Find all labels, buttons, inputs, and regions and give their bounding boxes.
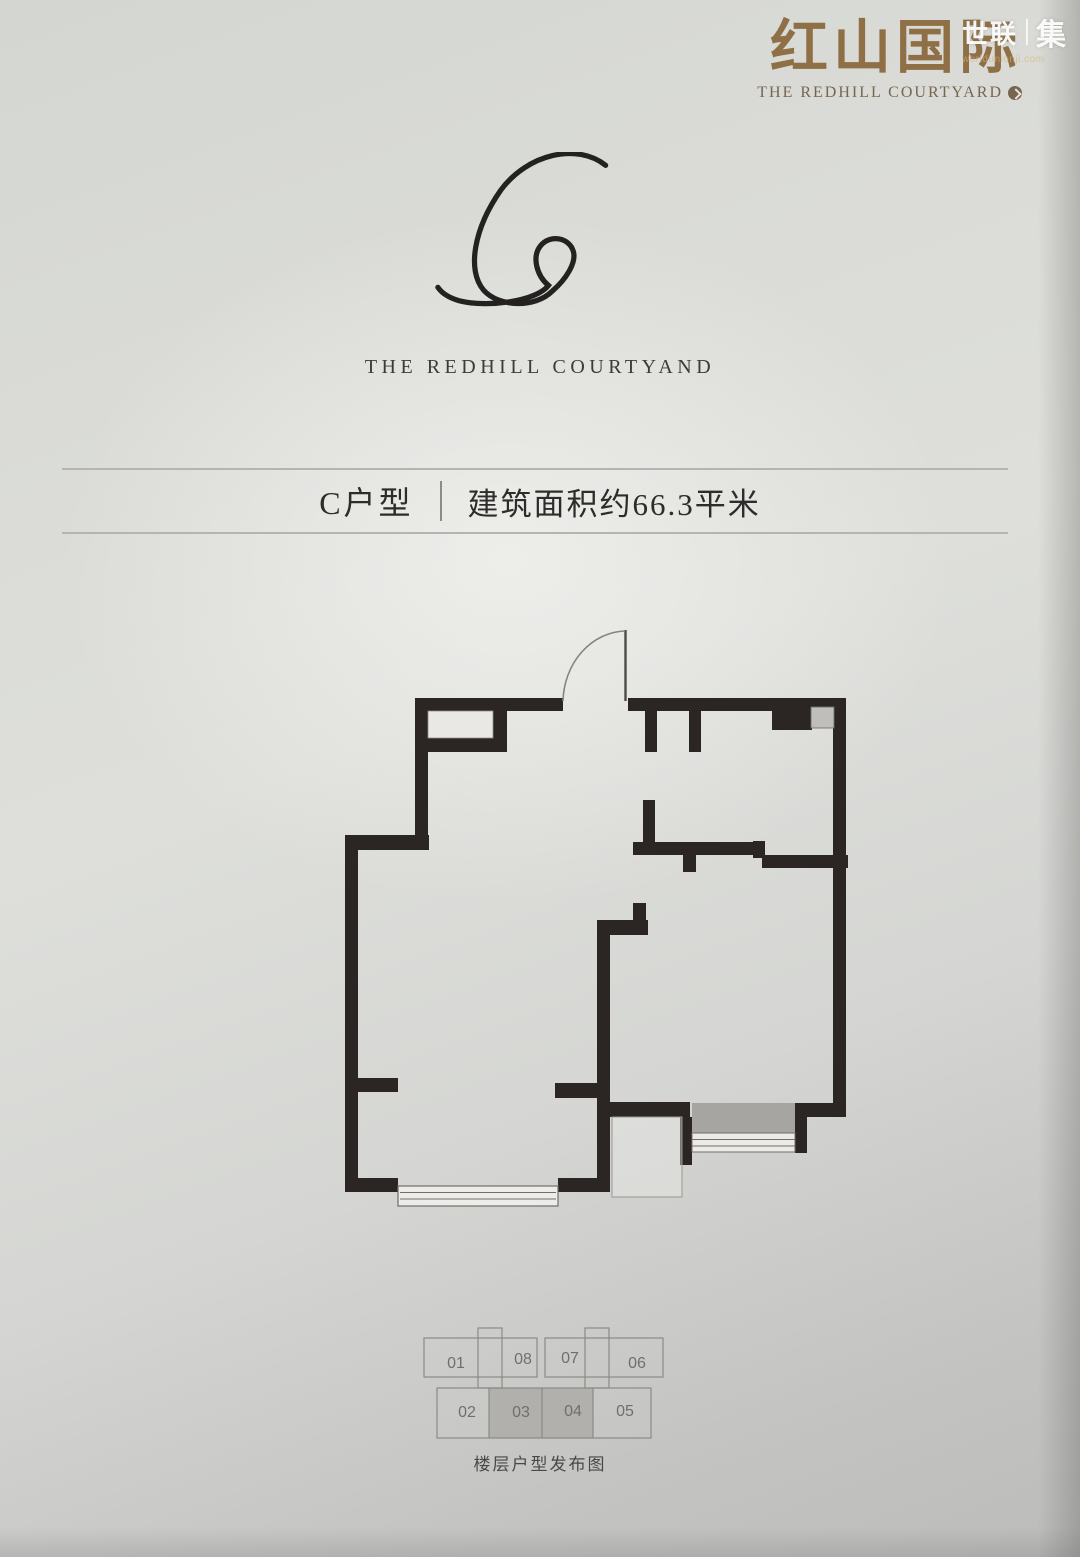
wall-segment <box>689 711 701 752</box>
title-band: C户型 建筑面积约66.3平米 <box>0 470 1080 532</box>
wall-segment <box>555 1083 597 1098</box>
unit-label: 07 <box>561 1350 579 1367</box>
wall-segment <box>345 850 358 1192</box>
utility-platform <box>612 1117 682 1197</box>
unit-label: 01 <box>447 1355 465 1372</box>
watermark-row: 世联 集 <box>962 10 1066 54</box>
building-outline <box>478 1328 502 1388</box>
living-room-window <box>398 1186 558 1206</box>
wordmark: THE REDHILL COURTYAND <box>0 356 1080 379</box>
watermark-divider <box>1026 19 1028 45</box>
photo-edge-shadow-right <box>1038 0 1080 1557</box>
divider-line-bottom <box>62 532 1008 534</box>
photo-edge-shadow-bottom <box>0 1527 1080 1557</box>
door-arc <box>563 631 625 701</box>
unit-label: 08 <box>514 1351 532 1368</box>
wall-segment <box>645 711 657 752</box>
key-plan-caption: 楼层户型发布图 <box>0 1450 1080 1475</box>
wall-segment <box>345 835 429 850</box>
key-plan-svg: 0108070602030405 <box>415 1322 671 1444</box>
unit-label: 06 <box>628 1355 646 1372</box>
wall-segment <box>415 711 428 850</box>
wall-segment <box>772 711 812 730</box>
wall-segment <box>597 920 610 1192</box>
wall-segment <box>833 698 846 1117</box>
wall-segment <box>643 800 655 842</box>
watermark-left-text: 世联 <box>962 14 1018 51</box>
wall-segment <box>358 1078 398 1092</box>
balcony-deck <box>692 1103 795 1133</box>
wall-segment <box>493 711 507 745</box>
floor-plan-svg <box>340 622 852 1210</box>
closet-niche <box>428 711 493 738</box>
unit-label: 03 <box>512 1404 530 1421</box>
brand-logo-en: The Redhill Courtyard <box>757 84 1022 102</box>
monogram-script-c <box>432 152 642 314</box>
area-label: 建筑面积约66.3平米 <box>468 479 761 524</box>
watermark: 世联 集 worldunionji.com <box>962 10 1066 65</box>
script-c-path <box>438 154 606 304</box>
unit-label: 05 <box>616 1403 634 1420</box>
balcony-window <box>692 1133 795 1152</box>
circle-arrow-icon <box>1008 86 1022 100</box>
wall-segment <box>633 903 646 935</box>
wall-segment <box>795 1103 807 1153</box>
wall-segment <box>345 1178 398 1192</box>
wall-segment <box>415 698 563 711</box>
appliance-box <box>811 707 834 728</box>
title-divider <box>440 481 442 521</box>
unit-label: 02 <box>458 1404 476 1421</box>
brand-logo-subtitle: The Redhill Courtyard <box>757 84 1003 102</box>
unit-label: 04 <box>564 1403 582 1420</box>
wall-segment <box>597 1102 690 1117</box>
unit-type-label: C户型 <box>319 478 413 524</box>
building-outline <box>585 1328 609 1388</box>
watermark-right-text: 集 <box>1036 10 1066 54</box>
brochure-page: 红山国际 The Redhill Courtyard 世联 集 worlduni… <box>0 0 1080 1557</box>
wall-segment <box>633 842 763 855</box>
wall-segment <box>683 855 696 872</box>
watermark-url: worldunionji.com <box>962 54 1066 65</box>
